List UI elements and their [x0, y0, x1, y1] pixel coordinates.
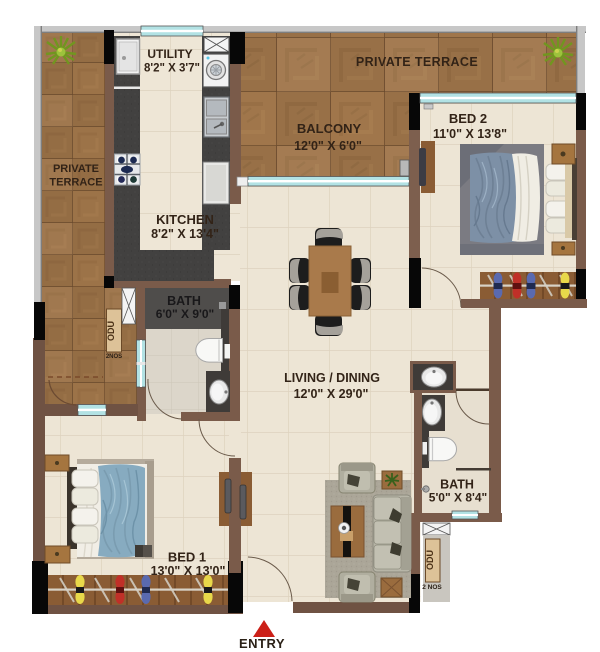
svg-text:PRIVATE TERRACE: PRIVATE TERRACE: [356, 55, 478, 69]
svg-text:12'0" X 6'0": 12'0" X 6'0": [294, 139, 362, 153]
svg-text:BALCONY: BALCONY: [297, 121, 362, 136]
svg-text:12'0" X 29'0": 12'0" X 29'0": [294, 387, 369, 401]
svg-text:11'0" X 13'8": 11'0" X 13'8": [433, 127, 507, 141]
svg-text:8'2" X 3'7": 8'2" X 3'7": [144, 63, 200, 75]
svg-text:13'0" X 13'0": 13'0" X 13'0": [151, 564, 226, 578]
svg-text:PRIVATE: PRIVATE: [53, 163, 99, 175]
svg-text:5'0" X 8'4": 5'0" X 8'4": [429, 491, 487, 505]
svg-text:BED 1: BED 1: [168, 550, 206, 565]
svg-text:2NOS: 2NOS: [106, 354, 122, 360]
svg-text:TERRACE: TERRACE: [49, 177, 102, 189]
svg-text:KITCHEN: KITCHEN: [156, 212, 214, 227]
svg-text:2 NOS: 2 NOS: [422, 584, 442, 591]
svg-text:LIVING / DINING: LIVING / DINING: [284, 371, 380, 385]
svg-text:BED 2: BED 2: [449, 111, 487, 126]
svg-text:BATH: BATH: [167, 294, 201, 308]
svg-text:ENTRY: ENTRY: [239, 636, 285, 651]
svg-text:UTILITY: UTILITY: [147, 47, 192, 61]
svg-text:BATH: BATH: [440, 478, 474, 492]
svg-text:6'0" X 9'0": 6'0" X 9'0": [156, 307, 214, 321]
svg-text:ODU: ODU: [106, 321, 116, 341]
svg-text:ODU: ODU: [425, 550, 435, 570]
svg-text:8'2" X 13'4": 8'2" X 13'4": [151, 227, 219, 241]
